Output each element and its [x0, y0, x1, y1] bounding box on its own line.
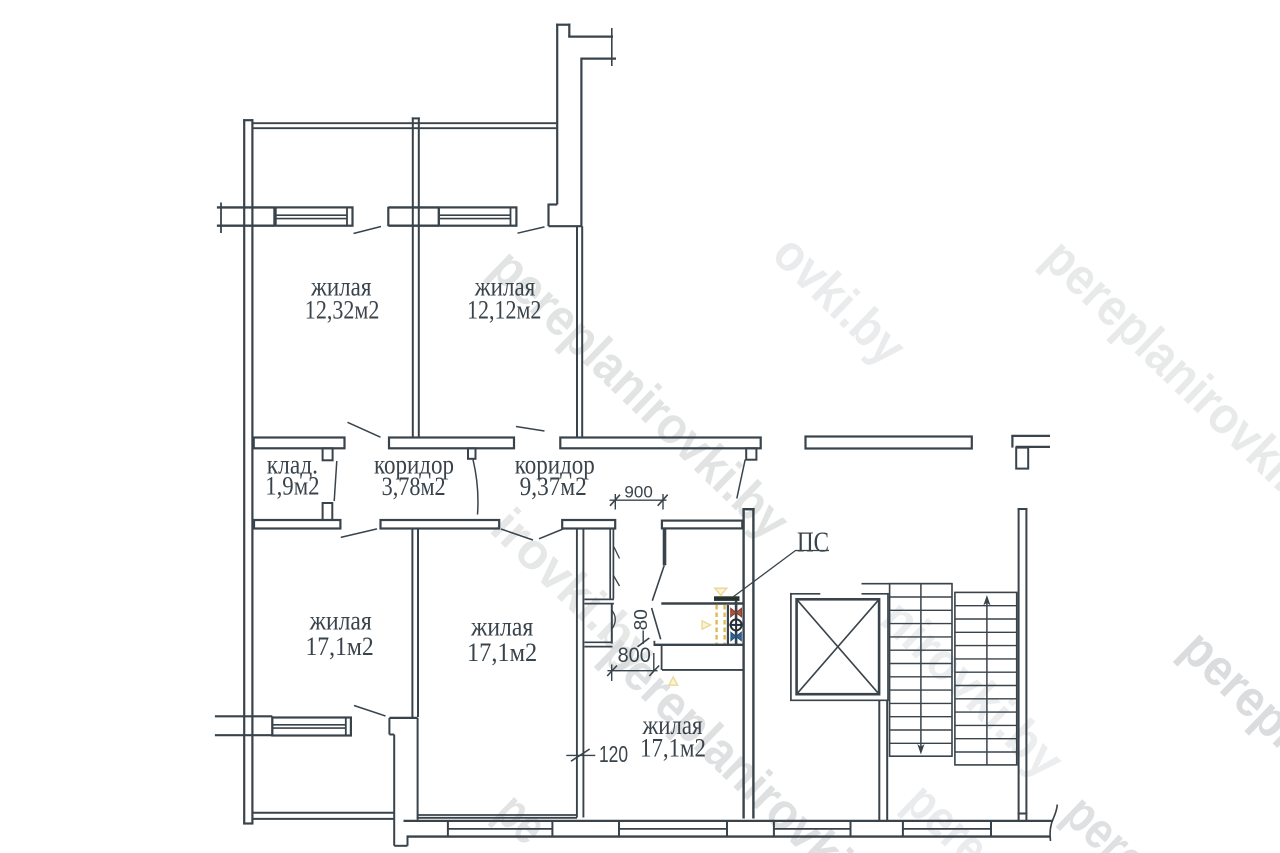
svg-text:17,1м2: 17,1м2: [305, 631, 373, 661]
svg-text:80: 80: [630, 609, 651, 630]
svg-text:pereplanirovki.by: pereplanirovki.by: [1170, 619, 1280, 853]
svg-text:ПС: ПС: [797, 527, 829, 559]
svg-text:pereplanirovki.by: pereplanirovki.by: [1032, 228, 1280, 541]
svg-text:800: 800: [618, 644, 651, 667]
svg-text:17,1м2: 17,1м2: [640, 733, 706, 763]
svg-text:120: 120: [599, 741, 628, 767]
svg-text:pere: pere: [1053, 784, 1159, 853]
svg-text:900: 900: [624, 482, 652, 501]
svg-text:3,78м2: 3,78м2: [382, 471, 446, 501]
svg-text:12,32м2: 12,32м2: [305, 295, 380, 325]
svg-text:17,1м2: 17,1м2: [467, 637, 537, 667]
svg-text:ovki.by: ovki.by: [762, 224, 917, 377]
svg-text:pere: pere: [894, 772, 1000, 853]
svg-text:12,12м2: 12,12м2: [467, 295, 541, 325]
svg-text:9,37м2: 9,37м2: [520, 471, 587, 501]
svg-text:1,9м2: 1,9м2: [265, 471, 319, 501]
